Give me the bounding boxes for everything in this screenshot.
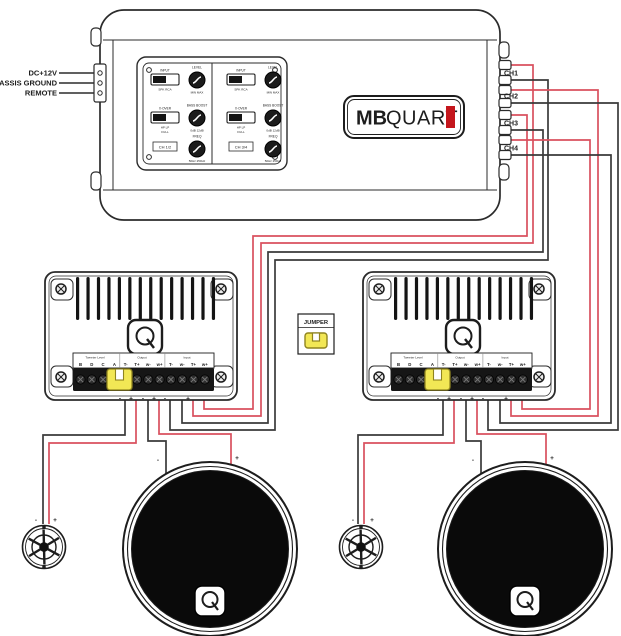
mount-ear-top-left [91,28,101,46]
terminal-label: w+ [201,362,208,367]
amplifier-channel-terminals: CH1CH2CH3CH4 [499,61,518,160]
xo-polarity-label: + [504,396,508,403]
freq-knob-range: 50Hz 250Hz [189,159,206,163]
channel-badge: CH 3/4 [235,144,248,149]
input-switch-label: INPUT [160,69,170,73]
terminal-label: w+ [474,362,481,367]
boost-knob-range: 0dB 12dB [190,129,203,133]
input-switch-range: SPK RCA [234,88,247,92]
level-knob-range: MIN MAX [191,91,204,95]
terminal-label: T- [169,362,173,367]
channel-terminal-ch1: CH1 [499,61,518,85]
woofer-plus-label: + [550,455,554,462]
heatsink-fin [118,277,121,320]
heatsink-fin [436,277,439,320]
xo-polarity-label: + [152,396,156,403]
tweeter-minus-label: - [352,517,354,524]
jumper-icon-notch [313,333,320,341]
xo-polarity-label: - [119,396,121,403]
terminal-label: A [113,362,116,367]
terminal-label: w+ [156,362,163,367]
heatsink-fin [446,277,449,320]
terminal-label: C [102,362,105,367]
channel-label: CH1 [504,71,518,78]
woofer-left: -+ [123,455,297,636]
woofer-minus-label: - [157,457,159,464]
crossover-right: Tweeter LevelOutputInputBDCAT-T+w-w+T-w-… [363,272,555,403]
terminal-section-header: Output [137,356,146,360]
slider-switch-knob [229,76,242,83]
channel-terminal-ch2: CH2 [499,86,518,108]
input-switch-range: SPK RCA [158,88,171,92]
xover-switch-range2: FULL [237,130,245,134]
speakers: -+-+-+-+ [23,455,613,636]
heatsink-fin [128,277,131,320]
xover-switch-range2: FULL [161,130,169,134]
level-knob-range: MIN MAX [267,91,280,95]
terminal-label: T+ [509,362,515,367]
terminal-label: T- [442,362,446,367]
heatsink-fin [509,277,512,320]
heatsink-fin [530,277,533,320]
installed-jumper-notch [116,369,124,380]
terminal-section-header: Tweeter Level [403,356,423,360]
terminal-label: D [408,362,411,367]
terminal-label: T+ [134,362,140,367]
tweeter-dome [39,542,49,552]
amplifier-power-terminals: DC+12VCHASSIS GROUNDREMOTE [0,64,106,102]
heatsink-fin [76,277,79,320]
xover-switch-label: X-OVER [235,107,248,111]
mount-ear-top-right [499,42,509,58]
channel-label: CH3 [504,121,518,128]
boost-knob-label: BASS BOOST [263,104,284,108]
boost-knob-label: BASS BOOST [187,104,208,108]
terminal-label: T- [487,362,491,367]
terminal-label: w- [497,362,503,367]
terminal-section-header: Output [455,356,464,360]
tweeter-right: -+ [340,517,383,569]
channel-terminal-ch4: CH4 [499,136,518,160]
heatsink-fin [139,277,142,320]
xo-polarity-label: - [460,396,462,403]
tweeter-left: -+ [23,517,66,569]
xo-polarity-label: - [142,396,144,403]
xo-polarity-label: + [129,396,133,403]
terminal-section-header: Input [184,356,191,360]
level-knob-label: LEVEL [192,66,202,70]
heatsink-fin [488,277,491,320]
brand-badge: MB QUART [344,96,464,138]
input-switch-label: INPUT [236,69,246,73]
channel-label: CH2 [504,94,518,101]
heatsink-fin [394,277,397,320]
tweeter-screw-icon [42,525,46,529]
wire-right-xo-tweeter-minus-output [358,392,443,524]
wire-left-xo-tweeter-plus-output [49,392,136,524]
xover-switch-label: X-OVER [159,107,172,111]
terminal-plus [499,61,511,70]
xo-polarity-label: + [186,396,190,403]
xo-polarity-label: + [447,396,451,403]
freq-knob-label: FREQ [193,135,202,139]
heatsink-fin [404,277,407,320]
terminal-section-header: Input [502,356,509,360]
heatsink-fin [467,277,470,320]
heatsink-fin [499,277,502,320]
xo-polarity-label: - [164,396,166,403]
xo-polarity-label: + [470,396,474,403]
tweeter-screw-icon [359,565,363,569]
heatsink-fin [519,277,522,320]
power-label: DC+12V [28,69,57,78]
amplifier-control-panel: INPUT SPK RCA LEVEL MIN MAX X-OVER HP LP… [137,57,287,170]
installed-jumper-notch [434,369,442,380]
terminal-label: B [397,362,400,367]
terminal-label: w- [179,362,185,367]
slider-switch-knob [153,114,166,121]
power-label: CHASSIS GROUND [0,79,58,88]
diagram-canvas: INPUT SPK RCA LEVEL MIN MAX X-OVER HP LP… [0,0,621,636]
terminal-label: w- [145,362,151,367]
terminal-plus [499,136,511,145]
woofer-q-badge-icon [195,586,225,616]
heatsink-fin [415,277,418,320]
heatsink-fin [170,277,173,320]
wire-left-xo-tweeter-minus-output [43,392,125,524]
wire-right-xo-tweeter-plus-output [364,392,454,524]
woofer-plus-label: + [235,455,239,462]
channel-terminal-ch3: CH3 [499,111,518,135]
woofer-minus-label: - [472,457,474,464]
heatsink-fin [457,277,460,320]
heatsink-fin [191,277,194,320]
mount-ear-bottom-right [499,164,509,180]
terminal-plus [499,111,511,120]
heatsink-fin [107,277,110,320]
heatsink-fin [97,277,100,320]
terminal-label: C [420,362,423,367]
power-label: REMOTE [25,89,57,98]
channel-label: CH4 [504,146,518,153]
q-logo-icon [128,320,162,354]
terminal-label: T- [124,362,128,367]
woofer-q-badge-icon [510,586,540,616]
tweeter-dome [356,542,366,552]
terminal-label: w- [463,362,469,367]
terminal-section-header: Tweeter Level [85,356,105,360]
wiring-diagram: INPUT SPK RCA LEVEL MIN MAX X-OVER HP LP… [0,0,621,636]
tweeter-plus-label: + [370,517,374,524]
heatsink-fin [201,277,204,320]
tweeter-minus-label: - [35,517,37,524]
jumper-legend: JUMPER [298,314,334,354]
heatsink-fin [86,277,89,320]
crossover-left: Tweeter LevelOutputInputBDCAT-T+w-w+T-w-… [45,272,237,403]
power-terminal-block [94,64,106,102]
terminal-label: D [90,362,93,367]
heatsink-fin [160,277,163,320]
boost-knob-range: 0dB 12dB [266,129,279,133]
terminal-label: B [79,362,82,367]
woofer-right: -+ [438,455,612,636]
freq-knob-label: FREQ [269,135,278,139]
mount-ear-bottom-left [91,172,101,190]
terminal-label: T+ [452,362,458,367]
heatsink-fin [478,277,481,320]
slider-switch-knob [229,114,242,121]
terminal-label: w+ [519,362,526,367]
tweeter-screw-icon [42,565,46,569]
terminal-label: T+ [191,362,197,367]
terminal-label: A [431,362,434,367]
heatsink-fin [425,277,428,320]
heatsink-fin [149,277,152,320]
tweeter-plus-label: + [53,517,57,524]
channel-badge: CH 1/2 [159,144,172,149]
heatsink-fin [181,277,184,320]
xo-polarity-label: - [437,396,439,403]
freq-knob-range: 50Hz 250Hz [265,159,282,163]
heatsink-fin [212,277,215,320]
jumper-legend-label: JUMPER [304,320,329,326]
xo-polarity-label: - [482,396,484,403]
level-knob-label: LEVEL [268,66,278,70]
q-logo-icon [446,320,480,354]
brand-red-block-icon [446,106,455,128]
slider-switch-knob [153,76,166,83]
tweeter-screw-icon [359,525,363,529]
brand-text-bold: MB [356,108,387,130]
